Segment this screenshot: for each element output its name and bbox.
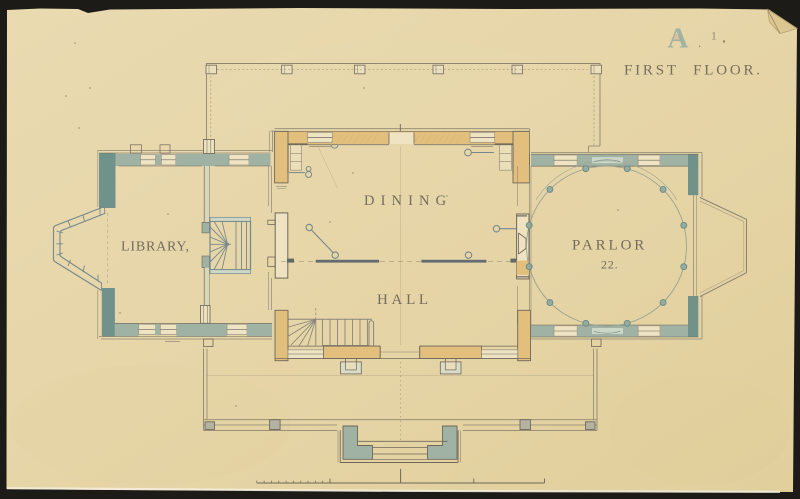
svg-text:DINING: DINING <box>364 193 452 209</box>
svg-text:FIRST FLOOR.: FIRST FLOOR. <box>624 63 763 79</box>
svg-text:PARLOR: PARLOR <box>572 238 647 254</box>
svg-text:A: A <box>668 23 690 55</box>
svg-text:HALL: HALL <box>377 292 432 308</box>
svg-text:LIBRARY,: LIBRARY, <box>121 240 190 255</box>
svg-text:.: . <box>698 35 701 50</box>
svg-text:22.: 22. <box>601 258 618 272</box>
svg-text:1: 1 <box>711 31 717 43</box>
